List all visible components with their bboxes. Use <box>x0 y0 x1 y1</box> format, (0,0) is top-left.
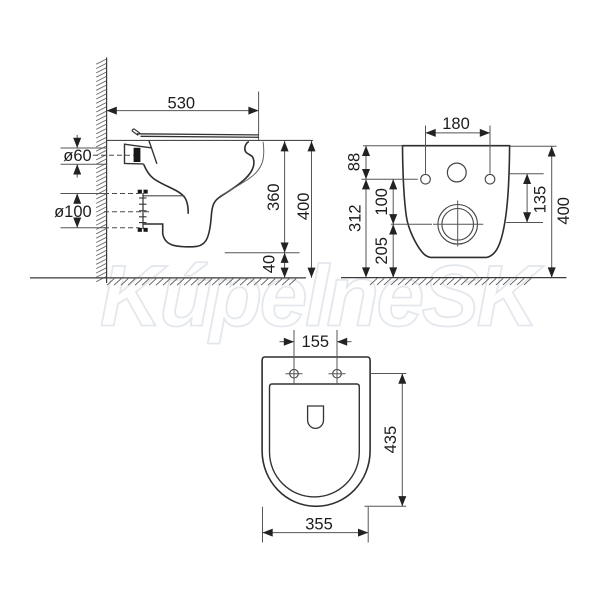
svg-text:312: 312 <box>347 204 365 232</box>
svg-text:135: 135 <box>532 186 550 214</box>
svg-text:435: 435 <box>382 426 400 454</box>
svg-text:180: 180 <box>442 115 470 133</box>
svg-text:88: 88 <box>345 153 363 171</box>
svg-text:KúpelneSK: KúpelneSK <box>100 249 545 345</box>
svg-text:205: 205 <box>373 237 391 265</box>
svg-text:100: 100 <box>373 188 391 216</box>
svg-text:ø100: ø100 <box>54 203 92 221</box>
svg-text:355: 355 <box>305 515 333 533</box>
svg-text:400: 400 <box>555 197 573 225</box>
svg-text:530: 530 <box>168 95 196 113</box>
svg-text:400: 400 <box>295 193 313 221</box>
svg-text:360: 360 <box>265 183 283 211</box>
svg-text:ø60: ø60 <box>63 147 91 165</box>
svg-text:155: 155 <box>302 333 330 351</box>
svg-text:40: 40 <box>260 255 278 273</box>
